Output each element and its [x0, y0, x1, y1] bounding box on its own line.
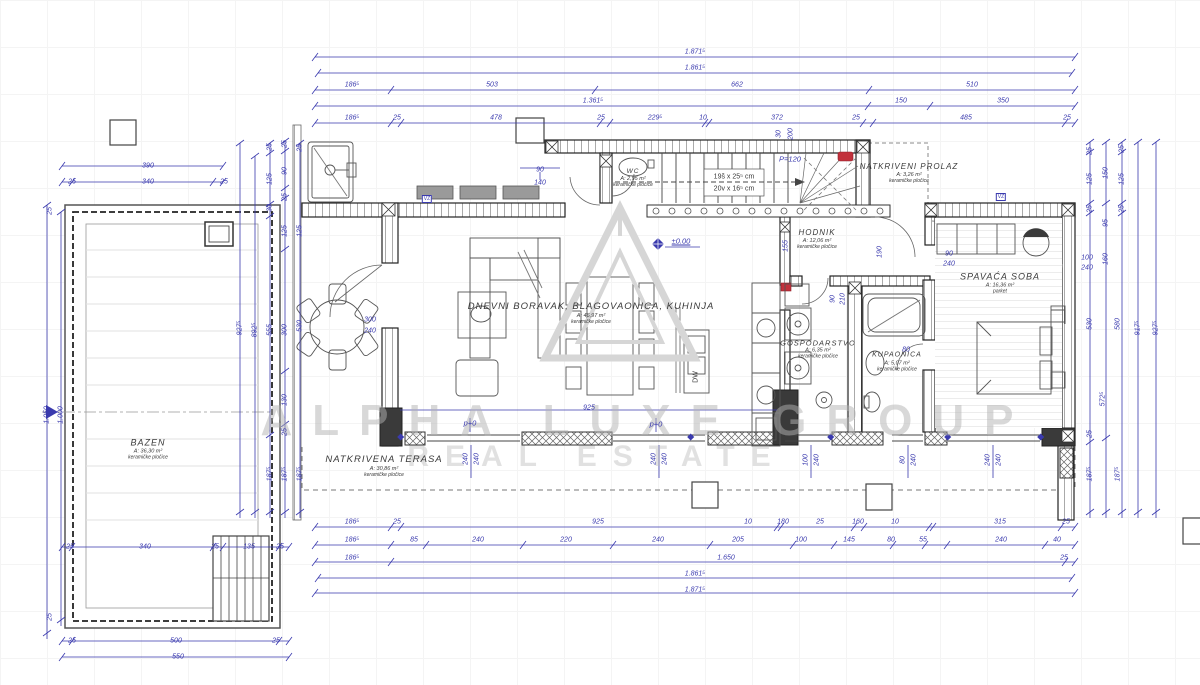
- floor-plan-page: ALPHA LUXE GROUP REAL ESTATE BAZEN A: 36…: [0, 0, 1200, 685]
- staircase: [615, 153, 860, 203]
- pool-area: [42, 205, 280, 628]
- utility-appliances: [785, 284, 832, 408]
- armchair: [456, 360, 498, 396]
- entry-walk-dashes: [804, 158, 856, 210]
- balustrade: [647, 205, 890, 217]
- watermark-line2: REAL ESTATE: [407, 440, 786, 474]
- outdoor-shower: [308, 142, 356, 202]
- north-window-shutters: [417, 186, 539, 199]
- pool-level-arrow: [46, 405, 58, 419]
- covered-passage-dashed: [868, 143, 928, 203]
- red-markers: [781, 152, 853, 291]
- coffee-table: [458, 292, 506, 338]
- terrace-table: [296, 284, 379, 370]
- level-marker: [652, 238, 700, 250]
- pool-planter: [205, 222, 233, 246]
- floor-plan-drawing: [0, 0, 1200, 685]
- sofa: [470, 238, 560, 358]
- wc-fixtures: [619, 158, 654, 176]
- watermark-line1: ALPHA LUXE GROUP: [260, 396, 1033, 446]
- bathroom-fixtures: [863, 294, 925, 412]
